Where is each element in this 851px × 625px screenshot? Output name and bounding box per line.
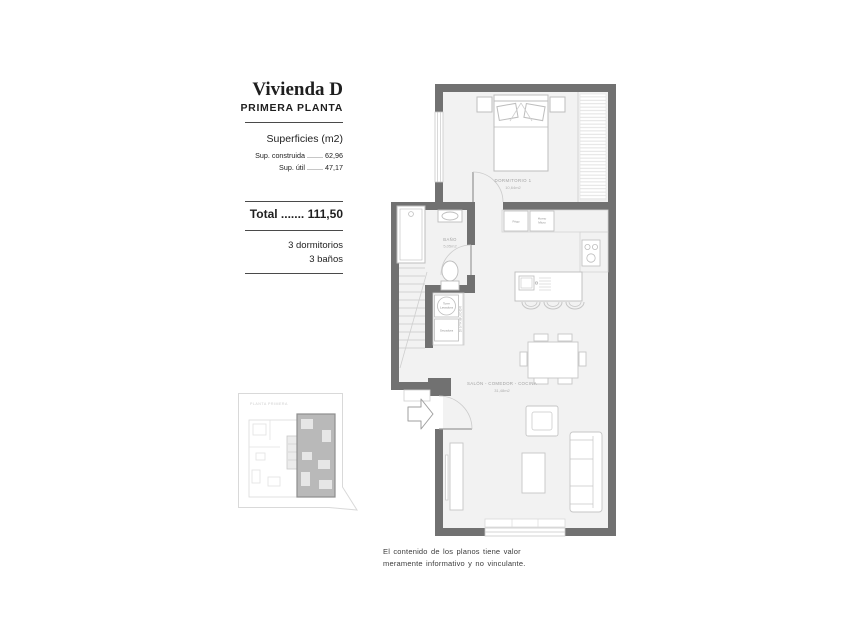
total-row: Total ....... 111,50 — [215, 207, 343, 221]
bathroom-sink — [438, 210, 462, 222]
oven-label-2: Micro — [538, 221, 546, 225]
dryer-label: Secadora — [440, 329, 454, 333]
fridge-label: Frigo — [512, 220, 519, 224]
surface-value: 62,96 — [325, 151, 343, 160]
divider-line — [245, 122, 343, 123]
feature-bedrooms: 3 dormitorios — [215, 240, 343, 251]
dining-table — [528, 342, 578, 378]
window-bedroom — [435, 112, 443, 182]
dot-leader: ........ — [307, 163, 323, 172]
bathroom-area: 5,05m2 — [443, 244, 457, 249]
disclaimer-line-2: meramente informativo y no vinculante. — [383, 558, 526, 570]
nightstand-left — [477, 97, 492, 112]
dot-leader: ........ — [307, 151, 323, 160]
armchair — [526, 406, 558, 436]
plan-sheet: Vivienda D PRIMERA PLANTA Superficies (m… — [0, 0, 851, 625]
bedroom-area: 10,64m2 — [505, 185, 521, 190]
nightstand-right — [550, 97, 565, 112]
laundry-closet: Torre Lavadora Secadora DISTRIBUIDOR — [433, 293, 464, 345]
surface-value: 47,17 — [325, 163, 343, 172]
keyplan-caption: PLANTA PRIMERA — [250, 402, 288, 406]
feature-bathrooms: 3 baños — [215, 254, 343, 265]
surfaces-heading: Superficies (m2) — [215, 133, 343, 145]
entry-arrow-icon — [408, 399, 433, 429]
info-panel: Vivienda D PRIMERA PLANTA Superficies (m… — [215, 80, 343, 274]
living-area: 31,48m2 — [494, 388, 510, 393]
wardrobe — [578, 92, 606, 202]
entry-step — [404, 390, 430, 401]
cooktop — [582, 240, 600, 266]
washer-label-2: Lavadora — [440, 306, 453, 310]
bed — [494, 95, 548, 171]
disclaimer: El contenido de los planos tiene valor m… — [383, 546, 526, 569]
keyplan-highlighted-unit — [297, 414, 335, 497]
floor-subtitle: PRIMERA PLANTA — [215, 102, 343, 114]
surface-row-util: Sup. útil ........ 47,17 — [215, 163, 343, 172]
bedroom-name: DORMITORIO 1 — [495, 178, 532, 183]
divider-line — [245, 230, 343, 231]
divider-line — [245, 201, 343, 202]
surface-row-construida: Sup. construida ........ 62,96 — [215, 151, 343, 160]
bathroom-name: BAÑO — [443, 237, 457, 242]
living-name: SALÓN - COMEDOR - COCINA — [467, 381, 537, 386]
unit-title: Vivienda D — [215, 80, 343, 99]
surface-label: Sup. útil — [279, 163, 305, 172]
shower — [397, 206, 425, 263]
sofa — [570, 432, 602, 512]
total-label: Total — [250, 207, 278, 221]
toilet — [441, 261, 459, 290]
total-value: 111,50 — [308, 207, 343, 221]
dot-leader: ....... — [281, 207, 304, 221]
divider-line — [245, 273, 343, 274]
floor-plan: Torre Lavadora Secadora DISTRIBUIDOR Fri… — [388, 78, 624, 544]
hall-label: DISTRIBUIDOR — [459, 305, 463, 332]
coffee-table — [522, 453, 545, 493]
surface-label: Sup. construida — [255, 151, 305, 160]
key-plan: PLANTA PRIMERA — [228, 388, 362, 535]
disclaimer-line-1: El contenido de los planos tiene valor — [383, 546, 526, 558]
